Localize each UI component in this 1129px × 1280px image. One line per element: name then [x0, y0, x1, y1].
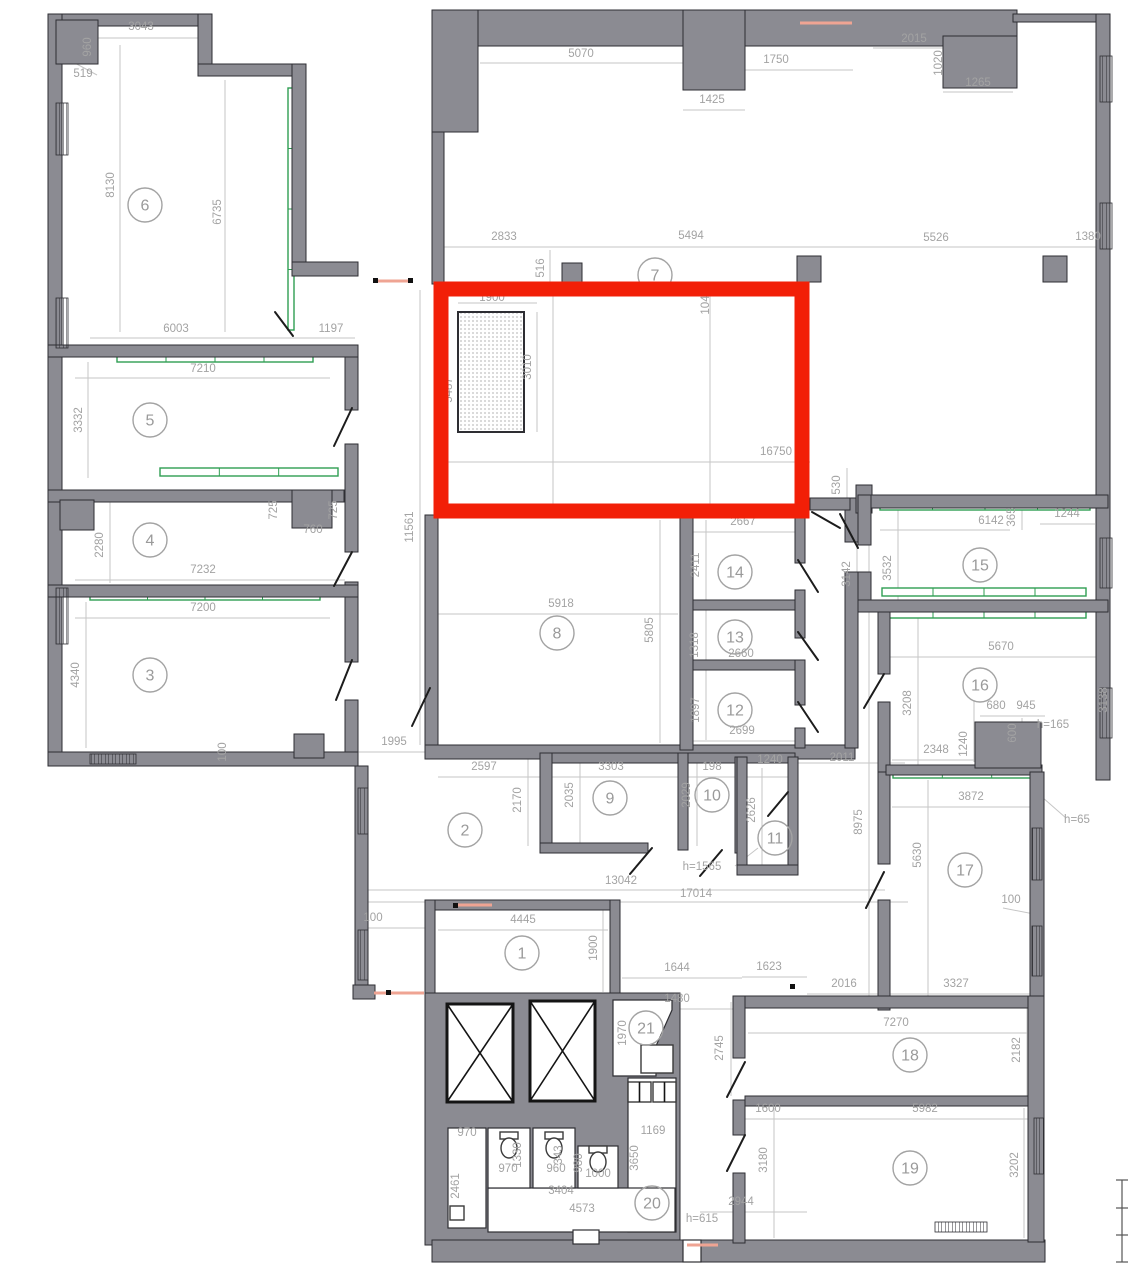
- dimension-label: 3010: [522, 354, 534, 380]
- room-number: 14: [726, 565, 744, 582]
- dimension-label: 2015: [901, 33, 927, 45]
- wall: [845, 572, 858, 748]
- room-number: 6: [141, 198, 150, 215]
- floor-plan-page: 3043960519813067356003119750701750142520…: [0, 0, 1129, 1280]
- dimension-label: 198: [702, 761, 721, 773]
- wall: [562, 263, 582, 283]
- dimension-label: 5070: [568, 48, 594, 60]
- room-number: 3: [146, 668, 155, 685]
- dimension-label: 980: [573, 1153, 585, 1172]
- dimension-label: 8130: [105, 172, 117, 198]
- dimension-label: 1265: [965, 77, 991, 89]
- dimension-label: 8975: [853, 809, 865, 835]
- wall: [797, 256, 821, 282]
- dimension-label: 1425: [699, 94, 725, 106]
- dimension-label: 2029: [681, 782, 693, 808]
- door-swing: [727, 1135, 745, 1171]
- wall: [878, 772, 890, 864]
- room-number: 5: [146, 413, 155, 430]
- door-swing: [334, 408, 352, 446]
- dimension-label: 1318: [689, 632, 701, 658]
- dimension-label: 5805: [644, 617, 656, 643]
- wall-dot: [408, 278, 413, 283]
- dimension-label: 100: [217, 742, 229, 761]
- floor-plan-svg: 3043960519813067356003119750701750142520…: [0, 0, 1129, 1280]
- wall: [795, 728, 805, 748]
- dimension-label: 1600: [755, 1103, 781, 1115]
- dimension-label: 945: [1016, 700, 1035, 712]
- dimension-label: 1900: [588, 935, 600, 961]
- wall: [878, 900, 890, 1010]
- dimension-label: 3142: [841, 561, 853, 587]
- room-number: 20: [643, 1196, 661, 1213]
- window-hatch: [1100, 538, 1112, 588]
- dimension-label: 3327: [943, 978, 969, 990]
- wall: [810, 498, 850, 510]
- wall: [540, 843, 648, 853]
- dimension-label: 7210: [190, 363, 216, 375]
- hatched-area: [458, 312, 524, 432]
- dimension-label: 3138: [1098, 687, 1110, 713]
- wall: [1013, 14, 1108, 22]
- dimension-label: 2833: [491, 231, 517, 243]
- dimension-label: 1644: [664, 962, 690, 974]
- wall: [345, 352, 358, 410]
- wall: [733, 1173, 745, 1243]
- wall: [353, 985, 375, 999]
- wall: [198, 64, 304, 76]
- wall: [345, 444, 358, 552]
- dimension-label: 2597: [471, 761, 497, 773]
- door-swing: [334, 552, 352, 586]
- wall: [540, 753, 552, 850]
- dimension-label: 100: [363, 912, 382, 924]
- room-number: 4: [146, 533, 155, 550]
- dimension-label: 519: [73, 68, 92, 80]
- dimension-label: h=165: [1037, 719, 1069, 731]
- wall: [1096, 14, 1110, 780]
- dimension-label: 2626: [746, 797, 758, 823]
- dimension-label: 1970: [617, 1020, 629, 1046]
- wall: [432, 132, 444, 284]
- window-hatch: [90, 754, 136, 764]
- dimension-line: [1003, 908, 1034, 914]
- door-swing: [336, 660, 352, 700]
- room-number: 15: [971, 558, 989, 575]
- fixture-box: [641, 1045, 673, 1073]
- window-hatch: [1034, 1118, 1044, 1174]
- door-swing: [798, 560, 818, 592]
- dimension-label: 7200: [190, 602, 216, 614]
- dimension-label: 2745: [714, 1035, 726, 1061]
- dimension-label: 3332: [73, 407, 85, 433]
- wall: [733, 996, 1040, 1008]
- door-swing: [812, 512, 840, 528]
- wall: [1043, 256, 1067, 282]
- wall: [292, 64, 306, 274]
- dimension-label: 7270: [883, 1017, 909, 1029]
- window-hatch: [1100, 56, 1112, 102]
- room-number: 1: [518, 946, 527, 963]
- dimension-label: 680: [986, 700, 1005, 712]
- dimension-label: 2035: [564, 782, 576, 808]
- wall: [432, 10, 478, 132]
- door-swing: [798, 632, 818, 660]
- wall: [878, 612, 890, 674]
- dimension-label: 2461: [450, 1173, 462, 1199]
- room-number: 2: [461, 823, 470, 840]
- dimension-label: 1750: [763, 54, 789, 66]
- room-number: 11: [767, 831, 784, 848]
- dimension-label: 960: [82, 37, 94, 56]
- dimension-label: 725: [268, 500, 280, 519]
- wall: [292, 490, 332, 528]
- window-hatch: [1100, 203, 1112, 249]
- window-hatch: [935, 1222, 987, 1232]
- dimension-label: 4340: [70, 662, 82, 688]
- dimension-label: 13042: [605, 875, 637, 887]
- wall: [788, 757, 798, 873]
- wall: [48, 585, 358, 597]
- wall: [795, 515, 805, 563]
- wall: [292, 262, 358, 276]
- room-number: 9: [606, 791, 615, 808]
- dimension-label: 6003: [163, 323, 189, 335]
- dimension-label: 104: [700, 295, 712, 315]
- wall: [48, 345, 358, 357]
- window-hatch: [56, 298, 68, 348]
- dimension-label: 2348: [923, 744, 949, 756]
- dimension-label: 6142: [978, 515, 1004, 527]
- dimension-label: 17014: [680, 888, 713, 900]
- dimension-label: 3043: [128, 21, 154, 33]
- window-hatch: [56, 103, 68, 155]
- wall: [737, 865, 798, 875]
- window-hatch: [56, 588, 68, 644]
- dimension-label: 3404: [548, 1185, 574, 1197]
- dimension-label: 5918: [548, 598, 574, 610]
- dimension-label: 760: [303, 524, 322, 536]
- dimension-label: 600: [1007, 723, 1019, 742]
- window-hatch: [358, 788, 368, 834]
- dimension-label: 2944: [728, 1196, 754, 1208]
- dimension-label: 1169: [641, 1125, 666, 1137]
- wall: [745, 1096, 1040, 1106]
- wall-dot: [373, 278, 378, 283]
- dimension-label: 725: [328, 500, 340, 519]
- wall: [733, 996, 745, 1058]
- wall: [425, 900, 435, 995]
- door-swing: [768, 792, 788, 816]
- window-hatch: [1032, 828, 1042, 880]
- dimension-label: 516: [535, 258, 547, 277]
- dimension-label: 1020: [933, 50, 945, 76]
- wall: [858, 600, 1108, 612]
- dimension-label: 2280: [94, 532, 106, 558]
- dimension-label: 5494: [678, 230, 704, 242]
- dimension-label: 7232: [190, 564, 216, 576]
- dimension-label: 2016: [831, 978, 857, 990]
- dimension-label: 1897: [690, 697, 702, 723]
- dimension-label: 3532: [882, 555, 894, 581]
- dimension-label: 1240: [757, 754, 783, 766]
- room-number: 10: [703, 788, 721, 805]
- dimension-label: 1000: [585, 1168, 611, 1180]
- dimension-label: 970: [457, 1127, 476, 1139]
- room-number: 8: [553, 626, 562, 643]
- dimension-label: 16750: [760, 446, 792, 458]
- room-number: 16: [971, 678, 989, 695]
- dimension-label: 4573: [569, 1203, 595, 1215]
- dimension-label: 5526: [923, 232, 949, 244]
- wall: [693, 660, 795, 670]
- window-hatch: [358, 930, 368, 980]
- dimension-label: 1995: [381, 736, 407, 748]
- dimension-label: h=1565: [683, 861, 722, 873]
- dimension-label: 1380: [1075, 231, 1101, 243]
- dimension-label: 3650: [629, 1145, 641, 1171]
- dimension-label: 1623: [756, 961, 782, 973]
- fixture-box: [450, 1206, 464, 1220]
- wall: [858, 495, 871, 545]
- dimension-label: 2170: [512, 787, 524, 813]
- room-number: 17: [956, 863, 974, 880]
- dimension-label: 2011: [830, 752, 855, 764]
- wall: [733, 1100, 745, 1135]
- dimension-label: h=615: [686, 1213, 718, 1225]
- window-hatch: [1032, 926, 1042, 976]
- dimension-label: 4445: [510, 914, 536, 926]
- room-number: 12: [726, 703, 744, 720]
- room-number: 21: [637, 1021, 655, 1038]
- dimension-label: 1244: [1054, 508, 1080, 520]
- wall: [683, 10, 745, 90]
- dimension-label: 1197: [319, 323, 344, 335]
- dimension-label: 2182: [1011, 1037, 1023, 1063]
- wall-dot: [453, 903, 458, 908]
- dimension-label: 343: [553, 1145, 565, 1164]
- dimension-label: 5670: [988, 641, 1014, 653]
- hatched-zone: [458, 312, 524, 432]
- dimension-label: 6735: [212, 199, 224, 225]
- dimension-label: 11561: [404, 511, 416, 542]
- dimension-label: 3872: [958, 791, 984, 803]
- radiator-strip: [160, 468, 338, 476]
- wall: [610, 900, 620, 995]
- dimension-label: 365: [1006, 507, 1018, 526]
- wall: [878, 702, 890, 772]
- wall: [294, 734, 324, 758]
- scale-bar: [1116, 1180, 1128, 1262]
- room-number: 13: [726, 630, 744, 647]
- door-swing: [727, 1062, 745, 1097]
- dimension-label: 5982: [912, 1103, 938, 1115]
- wall: [795, 660, 805, 705]
- room-number: 18: [901, 1048, 919, 1065]
- dimension-label: 1480: [664, 993, 690, 1005]
- dimension-label: 1240: [958, 731, 970, 757]
- room-number: 19: [901, 1161, 919, 1178]
- wall: [795, 590, 805, 638]
- room-cutout: [683, 1240, 701, 1262]
- wall-dot: [386, 990, 391, 995]
- wall: [425, 515, 438, 748]
- radiator-strips: [90, 88, 1090, 778]
- dimension-label: h=65: [1064, 814, 1090, 826]
- dimension-label: 3202: [1009, 1152, 1021, 1178]
- dimension-label: 100: [1001, 894, 1020, 906]
- dimension-label: 5630: [912, 842, 924, 868]
- dimension-label: 2411: [690, 553, 702, 578]
- dimension-label: 970: [498, 1163, 517, 1175]
- dimension-label: 3180: [758, 1147, 770, 1173]
- dimension-label: 3208: [902, 690, 914, 716]
- wall: [60, 500, 94, 530]
- wall-dot: [790, 984, 795, 989]
- dimension-label: 530: [831, 475, 843, 494]
- wall: [693, 600, 795, 610]
- wall: [858, 495, 1108, 508]
- dimension-label: 3303: [598, 761, 624, 773]
- room-cutout: [573, 1230, 599, 1244]
